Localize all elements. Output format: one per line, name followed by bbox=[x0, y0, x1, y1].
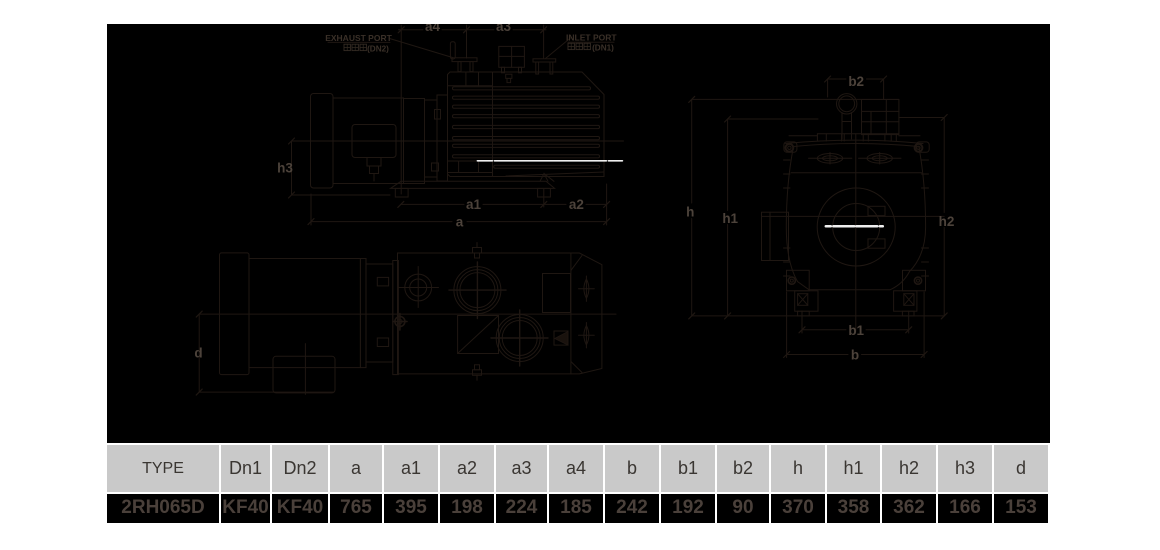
svg-text:b1: b1 bbox=[848, 323, 864, 338]
svg-text:b: b bbox=[851, 348, 859, 363]
svg-text:d: d bbox=[194, 345, 202, 360]
svg-text:h1: h1 bbox=[722, 211, 738, 226]
svg-text:a3: a3 bbox=[496, 24, 512, 34]
svg-text:EXHAUST PORT: EXHAUST PORT bbox=[325, 33, 392, 43]
svg-text:a2: a2 bbox=[569, 197, 584, 212]
svg-text:b2: b2 bbox=[848, 74, 864, 89]
svg-text:h3: h3 bbox=[277, 161, 293, 176]
svg-text:(DN1): (DN1) bbox=[592, 43, 614, 52]
svg-text:h: h bbox=[686, 205, 694, 220]
svg-text:INLET PORT: INLET PORT bbox=[566, 33, 617, 43]
svg-text:(DN2): (DN2) bbox=[367, 44, 389, 53]
svg-text:a4: a4 bbox=[425, 24, 441, 34]
svg-text:h2: h2 bbox=[939, 214, 955, 229]
svg-text:a: a bbox=[456, 214, 464, 229]
svg-text:a1: a1 bbox=[466, 197, 482, 212]
